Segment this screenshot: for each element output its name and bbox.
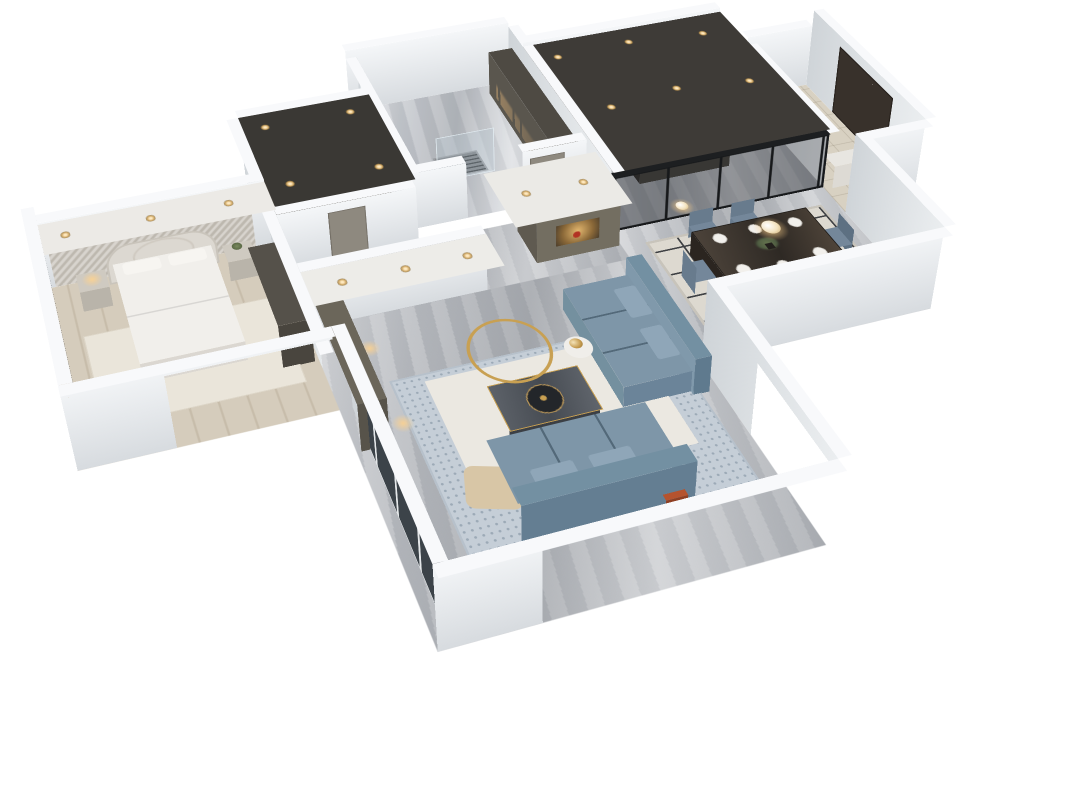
sofa-backrest-side	[693, 356, 712, 396]
downlight-icon	[284, 180, 296, 188]
downlight-icon	[671, 85, 683, 91]
downlight-icon	[605, 104, 617, 111]
downlight-icon	[223, 199, 235, 207]
apartment-floor-plan: E N H A N C E	[14, 33, 1080, 809]
downlight-icon	[520, 190, 532, 198]
downlight-icon	[399, 264, 412, 273]
downlight-icon	[461, 252, 474, 261]
plate	[710, 232, 730, 244]
downlight-icon	[744, 78, 756, 84]
downlight-icon	[552, 54, 563, 60]
downlight-icon	[623, 39, 634, 45]
downlight-icon	[373, 163, 385, 170]
duvet-fold	[127, 295, 230, 318]
downlight-icon	[145, 214, 156, 222]
downlight-icon	[577, 178, 590, 186]
render-canvas: E N H A N C E	[0, 0, 1080, 809]
downlight-icon	[697, 30, 708, 36]
downlight-icon	[336, 278, 349, 287]
downlight-icon	[60, 231, 71, 239]
downlight-icon	[345, 108, 356, 115]
downlight-icon	[260, 124, 271, 131]
